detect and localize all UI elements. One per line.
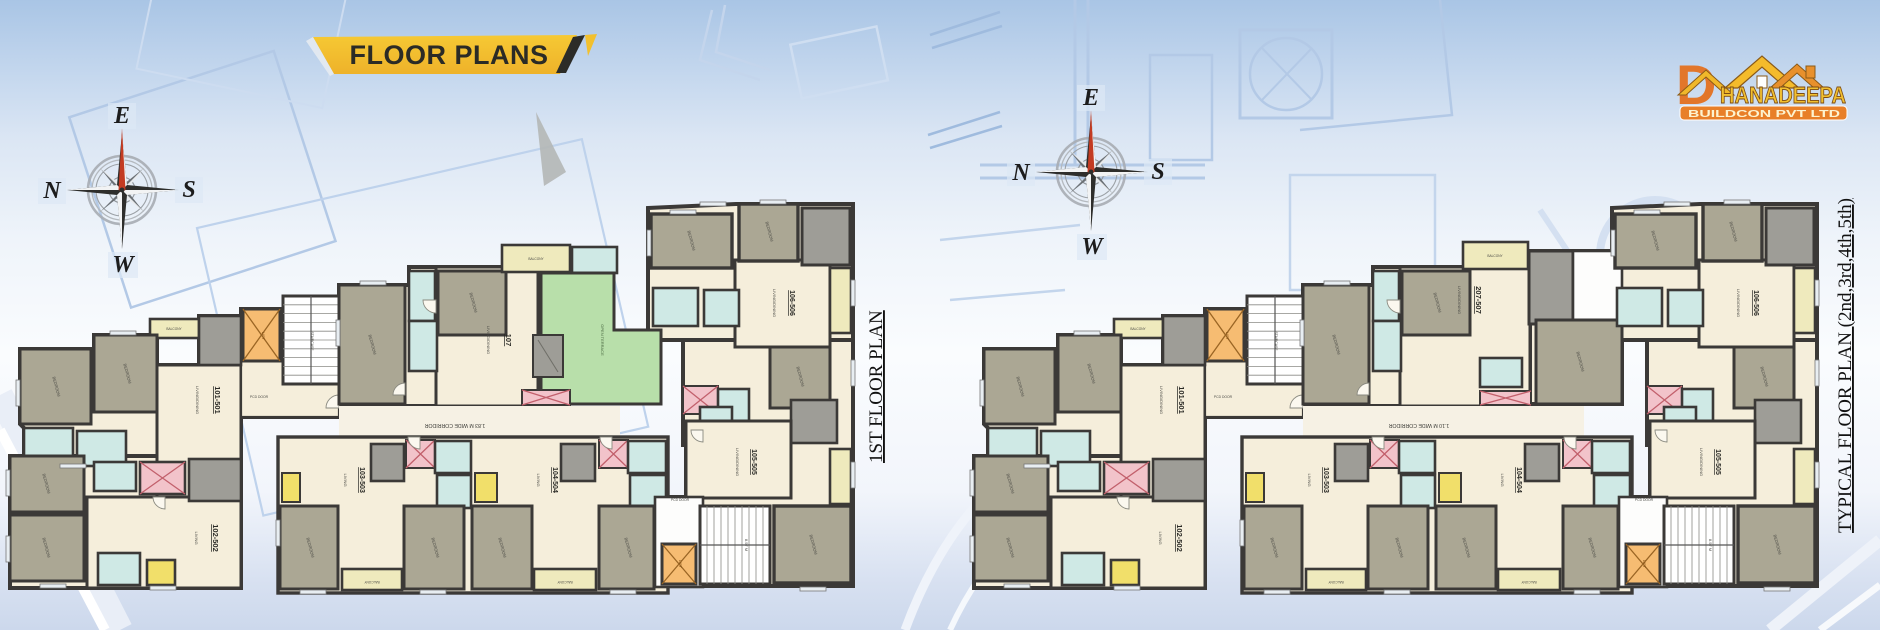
svg-text:BALCONY: BALCONY (166, 327, 182, 331)
svg-text:LIVING/DINING: LIVING/DINING (1699, 448, 1704, 476)
svg-text:LIVING: LIVING (343, 473, 348, 486)
svg-text:LIFT: LIFT (261, 332, 266, 341)
svg-text:1.10 M WIDE CORRIDOR: 1.10 M WIDE CORRIDOR (1388, 422, 1449, 428)
svg-text:N: N (1011, 160, 1031, 186)
svg-text:107: 107 (504, 334, 513, 347)
svg-text:TYPICAL FLOOR PLAN (2nd,3rd,4t: TYPICAL FLOOR PLAN (2nd,3rd,4th,5th) (1835, 198, 1856, 533)
svg-text:HANADEEPA: HANADEEPA (1720, 82, 1846, 108)
svg-text:PCD DOOR: PCD DOOR (250, 395, 269, 399)
svg-text:207-507: 207-507 (1474, 286, 1483, 314)
svg-text:106-506: 106-506 (1752, 290, 1759, 316)
svg-text:101-501: 101-501 (1177, 386, 1186, 414)
svg-text:101-501: 101-501 (213, 386, 222, 414)
svg-text:LIVING/DINING: LIVING/DINING (1457, 286, 1462, 314)
svg-text:BALCONY: BALCONY (1487, 254, 1503, 258)
svg-text:8.97 M: 8.97 M (744, 539, 749, 551)
svg-text:LIVING: LIVING (1500, 473, 1505, 486)
svg-text:PCD DOOR: PCD DOOR (1635, 498, 1654, 502)
svg-text:FLOOR PLANS: FLOOR PLANS (350, 40, 549, 70)
svg-text:PCD DOOR: PCD DOOR (671, 498, 690, 502)
svg-text:LIVING: LIVING (536, 473, 541, 486)
svg-text:103-503: 103-503 (358, 467, 365, 493)
svg-text:STAIRCASE: STAIRCASE (310, 332, 314, 352)
svg-text:OPEN TERRACE: OPEN TERRACE (600, 324, 605, 356)
svg-text:PCD DOOR: PCD DOOR (1214, 395, 1233, 399)
svg-text:S: S (1151, 159, 1164, 185)
svg-text:LIVING/DINING: LIVING/DINING (1159, 386, 1164, 414)
svg-text:LIFT: LIFT (678, 560, 683, 569)
svg-text:102-502: 102-502 (211, 524, 220, 552)
svg-text:104-504: 104-504 (551, 467, 558, 493)
svg-text:1ST FLOOR PLAN: 1ST FLOOR PLAN (866, 310, 887, 463)
svg-text:BUILDCON PVT LTD: BUILDCON PVT LTD (1688, 108, 1841, 120)
svg-text:E: E (1082, 85, 1099, 111)
svg-text:W: W (112, 252, 135, 278)
svg-text:102-502: 102-502 (1175, 524, 1184, 552)
svg-text:BALCONY: BALCONY (557, 580, 573, 584)
svg-text:106-506: 106-506 (788, 290, 795, 316)
svg-text:LIFT: LIFT (1642, 560, 1647, 569)
svg-text:STAIRCASE: STAIRCASE (1274, 332, 1278, 352)
svg-text:E: E (113, 103, 130, 129)
svg-text:BALCONY: BALCONY (364, 580, 380, 584)
svg-text:BALCONY: BALCONY (528, 257, 544, 261)
svg-text:W: W (1081, 234, 1104, 260)
svg-text:BALCONY: BALCONY (1521, 580, 1537, 584)
svg-text:LIVING/DINING: LIVING/DINING (772, 289, 777, 317)
svg-text:103-503: 103-503 (1322, 467, 1329, 493)
svg-text:LIFT: LIFT (1225, 332, 1230, 341)
svg-text:LIVING: LIVING (194, 531, 199, 544)
svg-text:LIVING/DINING: LIVING/DINING (1736, 289, 1741, 317)
svg-text:BALCONY: BALCONY (1328, 580, 1344, 584)
svg-text:N: N (42, 178, 62, 204)
svg-text:LIVING/DINING: LIVING/DINING (195, 386, 200, 414)
svg-text:S: S (182, 177, 195, 203)
svg-text:LIVING/DINING: LIVING/DINING (486, 326, 491, 354)
svg-text:104-504: 104-504 (1515, 467, 1522, 493)
svg-text:105-505: 105-505 (750, 449, 757, 475)
svg-text:LIVING/DINING: LIVING/DINING (735, 448, 740, 476)
svg-text:BALCONY: BALCONY (1130, 327, 1146, 331)
svg-text:LIVING: LIVING (1158, 531, 1163, 544)
svg-text:105-505: 105-505 (1714, 449, 1721, 475)
svg-text:LIVING: LIVING (1307, 473, 1312, 486)
svg-text:1.83 M WIDE CORRIDOR: 1.83 M WIDE CORRIDOR (424, 422, 485, 428)
svg-text:8.97 M: 8.97 M (1708, 539, 1713, 551)
